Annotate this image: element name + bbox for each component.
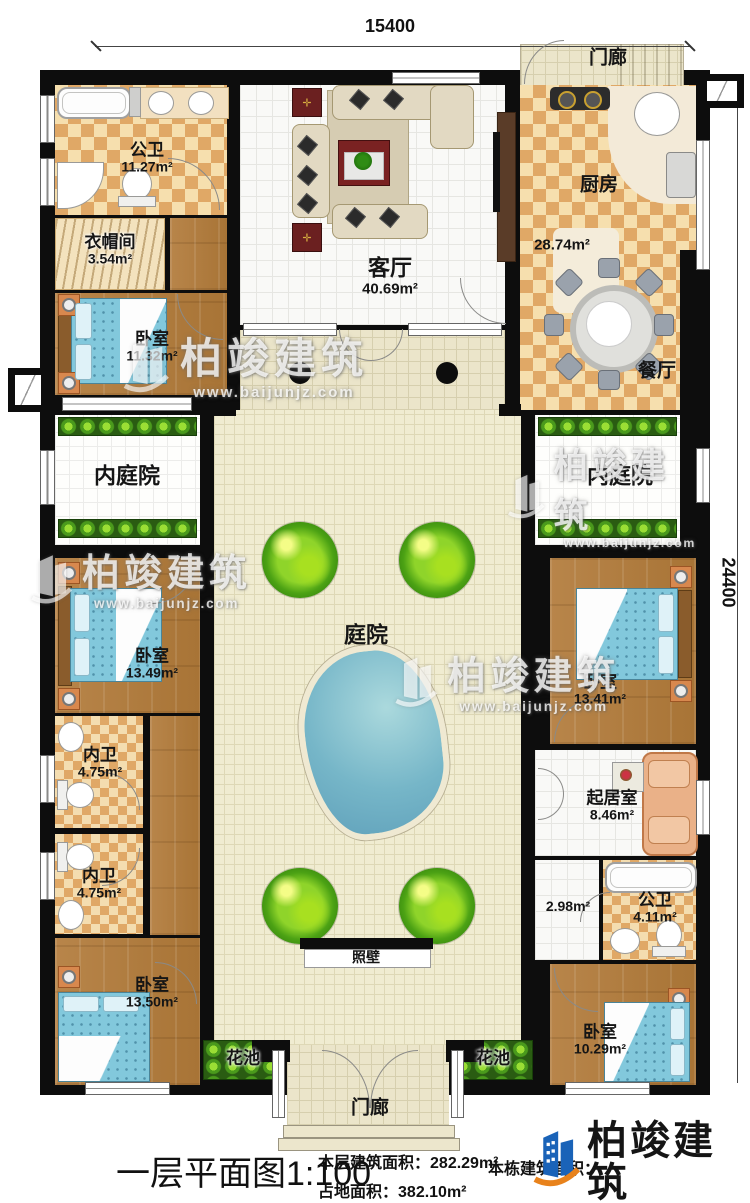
brand-name: 柏竣建筑 — [587, 1120, 750, 1203]
window — [85, 1082, 170, 1095]
bed-sheet — [577, 589, 627, 679]
sofa — [332, 204, 428, 239]
courtyard-label: 庭院 — [344, 624, 388, 649]
bathtub-icon — [605, 862, 697, 893]
cloakroom-label: 衣帽间 3.54m² — [85, 233, 136, 268]
window — [696, 780, 710, 835]
top-porch-label: 门廊 — [589, 47, 627, 68]
flower-strip — [58, 519, 197, 538]
bed-pillow — [74, 594, 90, 632]
window — [62, 397, 192, 411]
dining-room-label: 餐厅 — [638, 360, 676, 381]
bed-headboard — [678, 590, 692, 678]
flower-strip — [58, 417, 197, 436]
bed-pillow — [670, 1008, 685, 1040]
wall-niche — [700, 74, 744, 108]
sofa-chaise — [430, 85, 474, 149]
sink-icon — [610, 928, 640, 954]
inner-courtyard-right-label: 内庭院 — [587, 465, 653, 490]
bathtub-icon — [57, 87, 131, 119]
brand-logo-icon — [530, 1120, 583, 1192]
tree-icon — [399, 868, 475, 944]
screen-wall-base — [300, 938, 433, 949]
tv-icon — [493, 132, 500, 212]
wall-stub — [214, 404, 236, 416]
nightstand — [58, 688, 80, 710]
flower-bed-left-label: 花池 — [226, 1048, 260, 1067]
sofa-cushion — [648, 760, 690, 788]
bed-pillow — [75, 303, 92, 339]
nightstand — [58, 966, 80, 988]
toilet-tank — [118, 196, 156, 207]
nightstand — [58, 562, 80, 584]
window — [696, 140, 710, 270]
corner-table — [292, 88, 322, 117]
bed-pillow — [658, 594, 674, 632]
tree-icon — [399, 522, 475, 598]
tree-icon — [262, 868, 338, 944]
bath-divider — [129, 87, 141, 117]
porch-column — [289, 362, 311, 384]
right-dimension-label: 24400 — [718, 557, 739, 607]
burner — [558, 91, 576, 109]
top-dimension-label: 15400 — [365, 16, 415, 37]
hallway-area-label: 2.98m² — [546, 899, 590, 915]
bed-pillow — [74, 638, 90, 676]
floor-plan-canvas: 15400 24400 门廊 公卫 11.27m² 衣帽间 3.54m² 卧室 … — [0, 0, 750, 1203]
window-sill — [408, 323, 502, 336]
bedroom-top-left-label: 卧室 11.32m² — [126, 330, 177, 365]
porch-step — [283, 1125, 455, 1138]
cloak-hall-floor — [170, 218, 227, 290]
land-area-line: 占地面积：382.10m² — [318, 1179, 499, 1203]
dining-table-top — [586, 301, 632, 347]
window — [696, 448, 710, 503]
bedroom-mid-right-label: 卧室 13.41m² — [574, 673, 626, 708]
bed-pillow — [75, 344, 92, 380]
bath-bottom-right-label: 公卫 4.11m² — [633, 891, 677, 926]
burner — [584, 91, 602, 109]
corner-table — [292, 223, 322, 252]
screen-wall-label: 照壁 — [352, 950, 380, 966]
wall-stub — [680, 250, 696, 410]
inner-bath-2-label: 内卫 4.75m² — [77, 867, 121, 902]
porch-pillar — [272, 1050, 285, 1118]
sink-icon — [148, 91, 174, 115]
tree-icon — [262, 522, 338, 598]
inner-courtyard-left-label: 内庭院 — [94, 465, 160, 490]
toilet-icon — [66, 782, 94, 808]
toilet-tank — [652, 946, 686, 957]
flower-strip — [538, 417, 677, 436]
window — [40, 852, 55, 900]
chair — [598, 258, 620, 278]
sink-icon — [58, 900, 84, 930]
bedroom-bottom-right-label: 卧室 10.29m² — [574, 1023, 626, 1058]
porch-column — [436, 362, 458, 384]
nightstand — [670, 566, 692, 588]
sitting-room-label: 起居室 8.46m² — [587, 789, 638, 824]
flower-strip — [538, 519, 677, 538]
window — [40, 450, 55, 505]
bed-pillow — [670, 1044, 685, 1076]
area-summary: 本层建筑面积：282.29m² 占地面积：382.10m² — [318, 1150, 499, 1203]
kitchen-round-basin — [634, 92, 680, 136]
inner-bath-1-label: 内卫 4.75m² — [78, 746, 122, 781]
chair — [598, 370, 620, 390]
kitchen-sink-icon — [666, 152, 696, 198]
kitchen-area-label: 28.74m² — [534, 238, 590, 255]
porch-pillar — [451, 1050, 464, 1118]
bed-pillow — [63, 996, 99, 1012]
chair — [654, 314, 674, 336]
window — [40, 158, 55, 206]
kitchen-label: 厨房 — [580, 174, 618, 195]
wall-niche — [8, 368, 48, 412]
flower-bed-right-label: 花池 — [476, 1048, 510, 1067]
sink-icon — [188, 91, 214, 115]
bath-top-label: 公卫 11.27m² — [121, 141, 172, 176]
corridor-floor — [150, 716, 200, 935]
sofa-cushion — [648, 816, 690, 844]
wall-stub — [499, 404, 521, 416]
floor-area-line: 本层建筑面积：282.29m² — [318, 1150, 499, 1179]
bed-sheet — [59, 1036, 149, 1081]
bottom-porch-label: 门廊 — [351, 1097, 389, 1118]
window — [40, 755, 55, 803]
window — [565, 1082, 650, 1095]
window — [40, 95, 55, 143]
top-porch-deck-lines — [620, 44, 682, 86]
chair — [544, 314, 564, 336]
bedroom-bottom-left-label: 卧室 13.50m² — [126, 976, 178, 1011]
living-room-label: 客厅 40.69m² — [362, 256, 418, 297]
bed-pillow — [658, 636, 674, 674]
window-sill — [243, 323, 337, 336]
table-plant-icon — [354, 152, 372, 170]
painting-flowers — [620, 769, 632, 781]
nightstand — [670, 680, 692, 702]
brand-logo: 柏竣建筑 www.baijunjz.com — [530, 1120, 750, 1203]
bedroom-mid-left-label: 卧室 13.49m² — [126, 647, 178, 682]
window — [392, 72, 480, 84]
